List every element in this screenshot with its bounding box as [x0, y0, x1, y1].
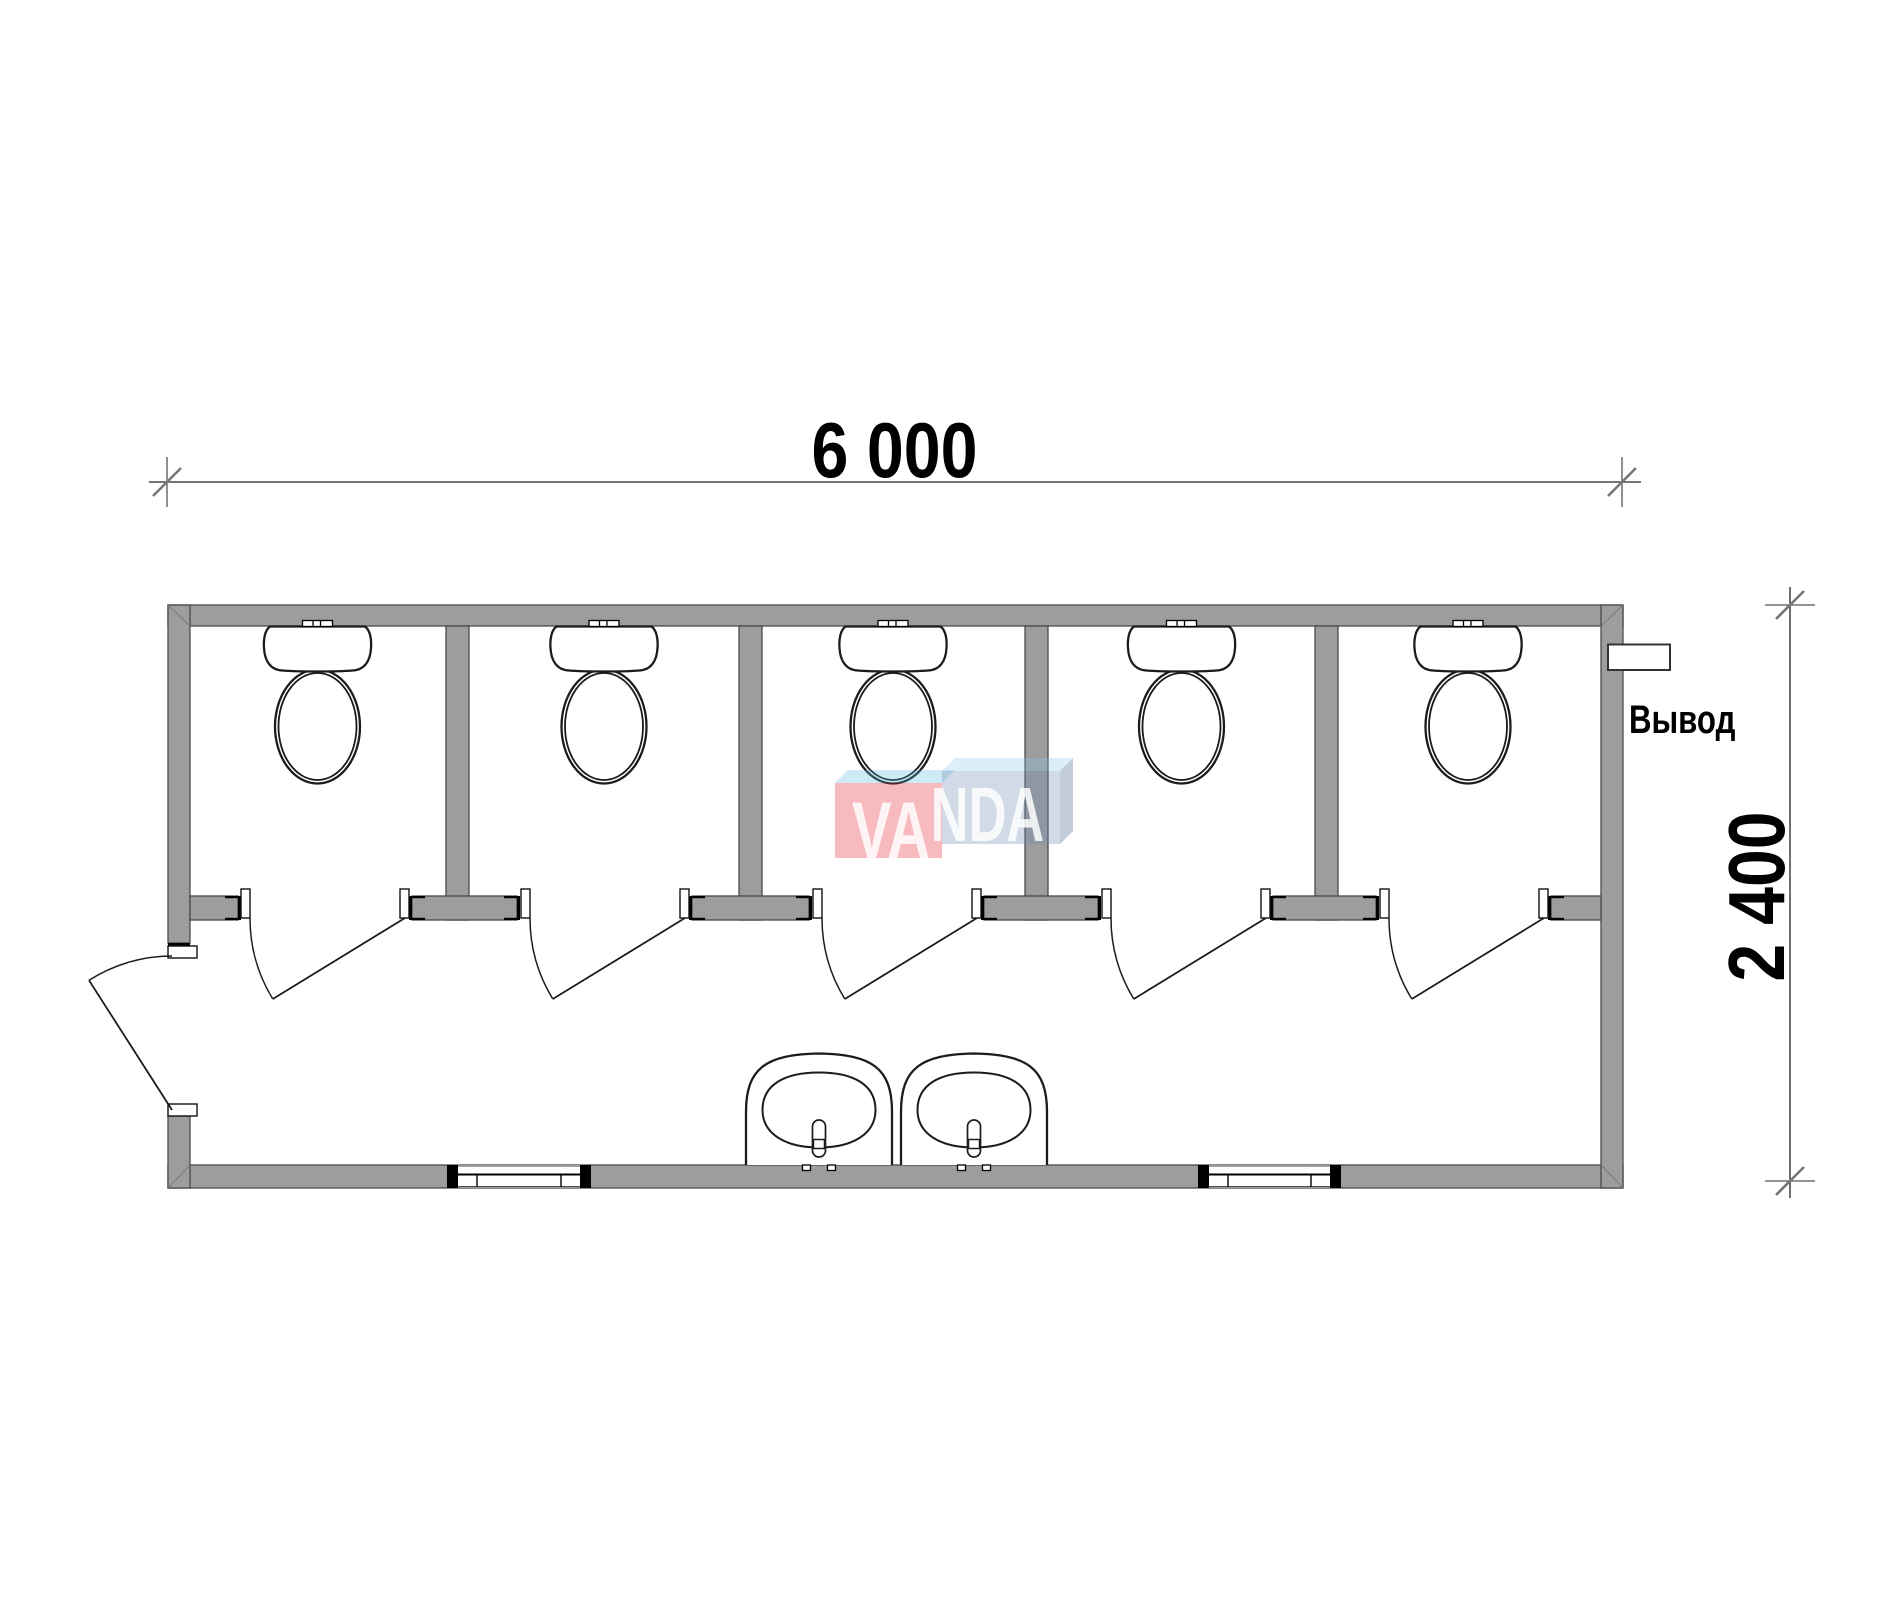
svg-text:VA: VA — [852, 786, 930, 876]
svg-text:NDA: NDA — [931, 771, 1044, 858]
svg-text:Вывод: Вывод — [1629, 697, 1736, 742]
svg-text:6 000: 6 000 — [812, 407, 978, 494]
svg-text:2 400: 2 400 — [1712, 811, 1801, 981]
